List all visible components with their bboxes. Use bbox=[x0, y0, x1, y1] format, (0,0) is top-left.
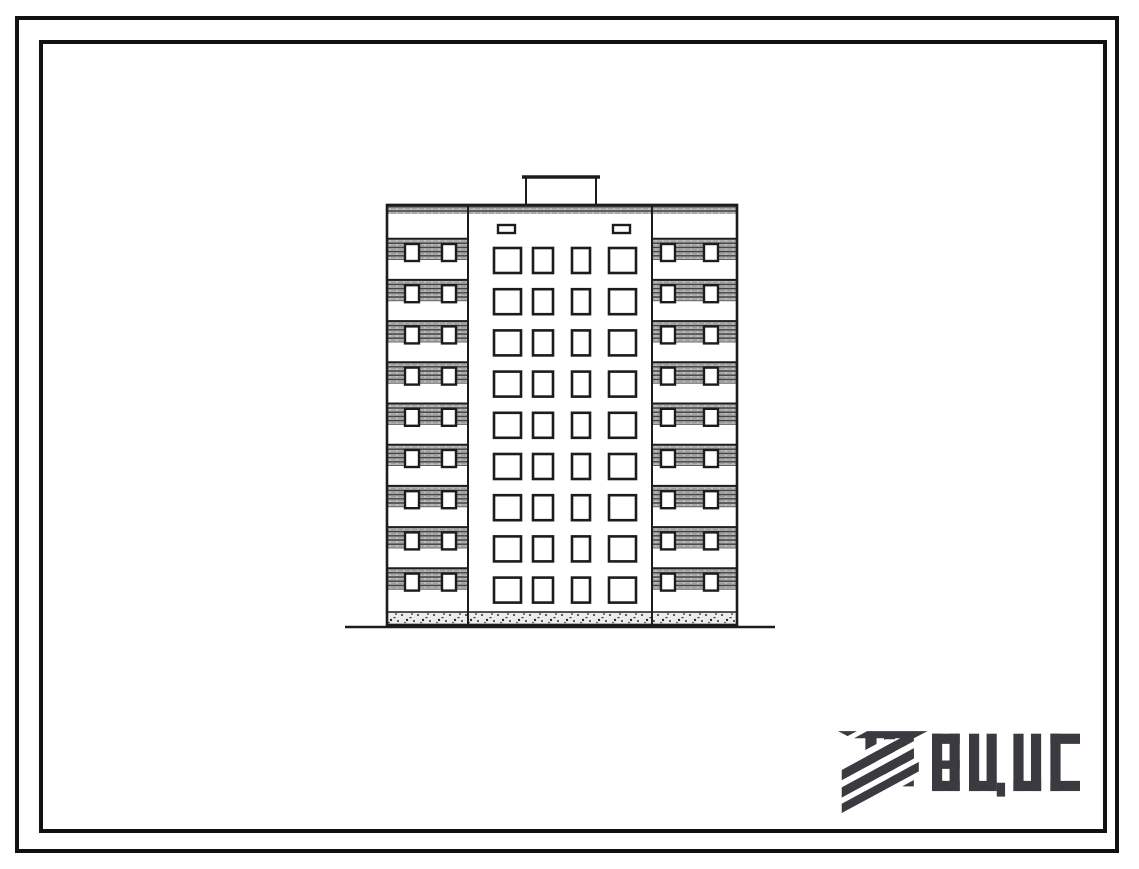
vcis-logo: ВЦИС bbox=[838, 727, 1084, 815]
attic-vents bbox=[498, 225, 630, 233]
building-elevation-drawing bbox=[330, 165, 790, 645]
vcis-emblem-icon bbox=[838, 727, 930, 813]
left-wing-balconies bbox=[388, 238, 468, 591]
right-wing-balconies bbox=[653, 238, 736, 591]
roof-structure bbox=[522, 177, 600, 206]
center-section-windows bbox=[494, 248, 636, 603]
roof-parapet bbox=[387, 205, 737, 214]
vcis-wordmark bbox=[932, 730, 1080, 804]
